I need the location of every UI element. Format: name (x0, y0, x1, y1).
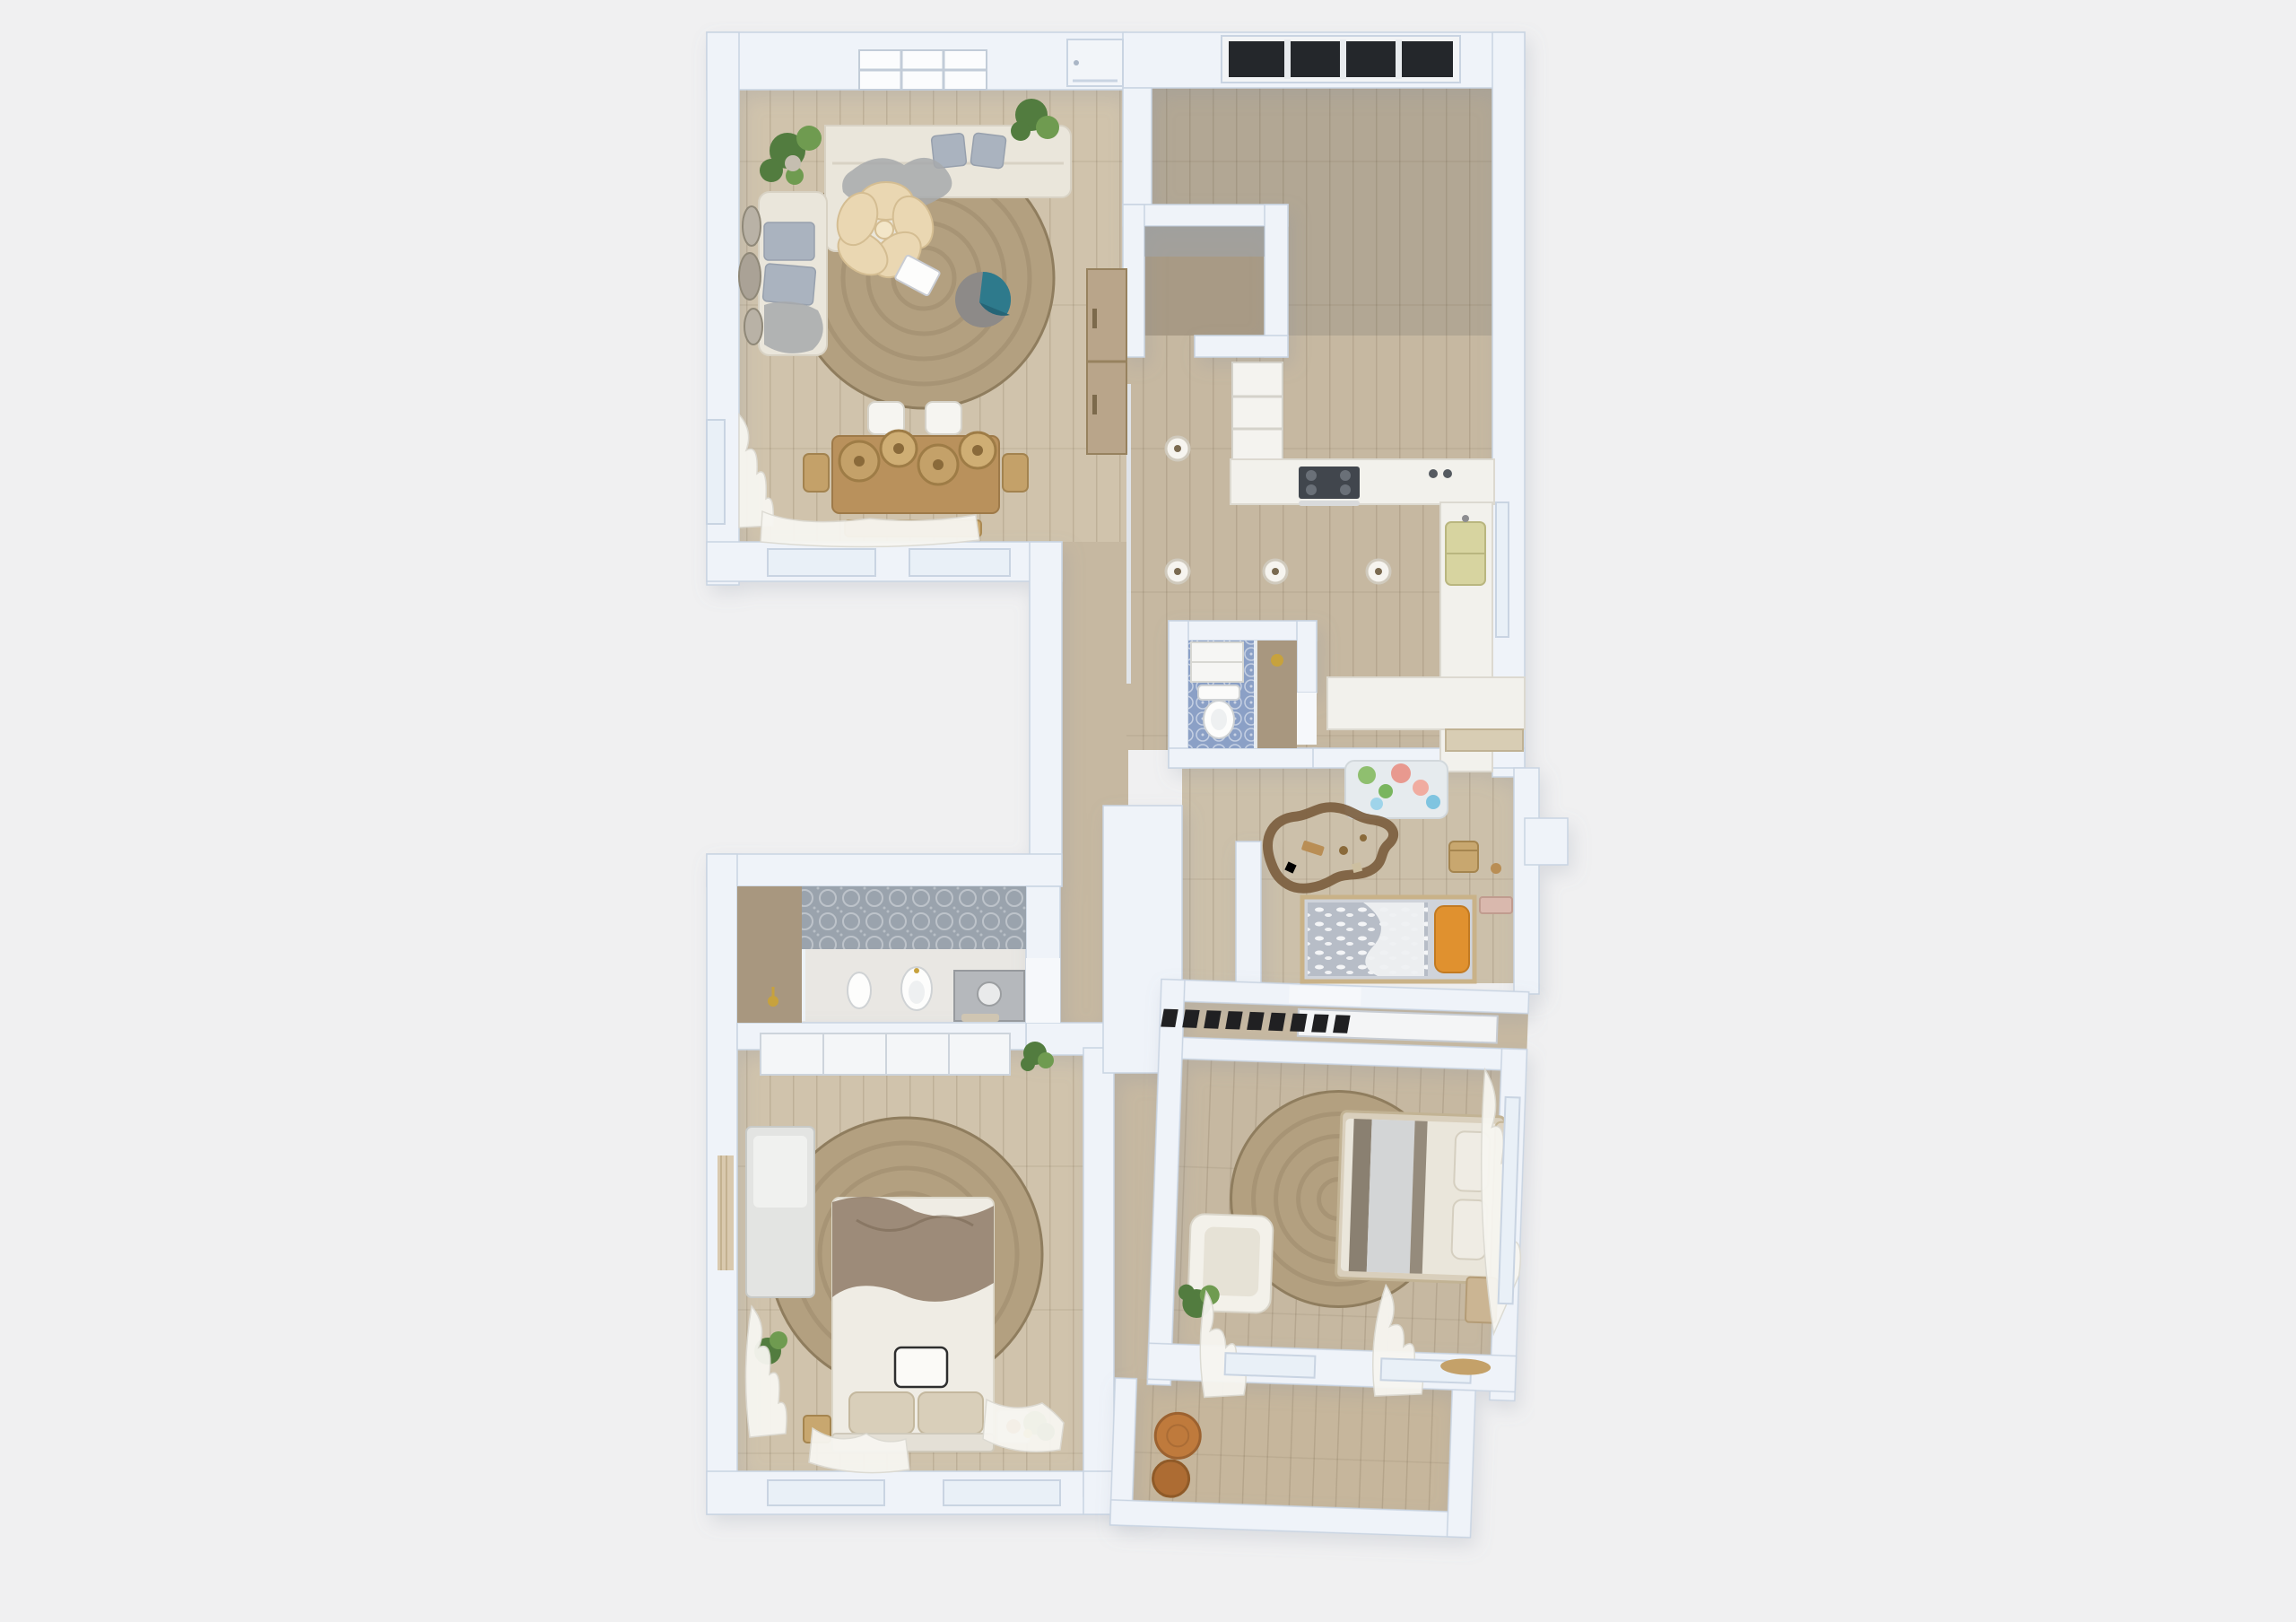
window-bedroom-left-2 (944, 1480, 1060, 1505)
white-cabinet (1232, 362, 1283, 459)
bed-runner-light (1367, 1120, 1415, 1274)
wc-door-threshold (1297, 693, 1317, 745)
wall-alcove-bottom (1195, 336, 1288, 357)
wall-wc-left (1169, 621, 1188, 768)
toy (1339, 846, 1348, 855)
wall-hallway-left (1030, 542, 1062, 886)
bed-pillow (918, 1392, 983, 1434)
kids-door-threshold (1289, 985, 1361, 1006)
faucet (1462, 515, 1469, 522)
skylight-window (1222, 36, 1460, 83)
toy-basket (1491, 863, 1501, 874)
wall-bedroom-left-right (1083, 1048, 1114, 1496)
peninsula-counter (1327, 677, 1525, 729)
dining-chair-white (926, 402, 961, 434)
bathroom-door-threshold (1026, 958, 1060, 1023)
wall-hall-separator (1123, 88, 1152, 205)
bedroom-right-block (1110, 978, 1530, 1539)
teal-pouf (955, 272, 1011, 327)
orange-pillow (1435, 906, 1469, 972)
wall-protrusion (1525, 818, 1568, 865)
floor-plan-screenshot (0, 0, 2296, 1622)
black-trim-cushion (895, 1347, 947, 1387)
hob-knob (1443, 469, 1452, 478)
wc-vanity (1191, 642, 1243, 682)
wall-wc-top (1169, 621, 1317, 641)
wall-kids-right (1514, 768, 1539, 994)
gold-shower-fixture (1271, 654, 1283, 667)
peninsula-base (1446, 729, 1523, 751)
window-bedroom-left-1 (768, 1480, 884, 1505)
door-handle (1074, 60, 1079, 65)
floor-plan-render (0, 0, 2296, 1622)
entrance-door (1067, 39, 1123, 86)
living-window (859, 50, 987, 90)
round-mat-small (1152, 1460, 1189, 1496)
wardrobe-handle (1092, 395, 1097, 414)
kitchen-sink (1446, 515, 1485, 585)
bidet (848, 972, 871, 1008)
wc (1188, 641, 1297, 748)
wall-alcove-right (1265, 205, 1288, 357)
oven-handle (1299, 501, 1360, 506)
toy (1360, 834, 1367, 842)
rattan-stool (1003, 454, 1028, 492)
wall-balcony-right (1447, 1390, 1475, 1538)
gold-flush-button (914, 968, 919, 973)
alcove-back-wall-shade (1144, 226, 1265, 257)
wall-alcove-top (1123, 205, 1288, 226)
floral-rug (1345, 761, 1448, 818)
toilet (901, 967, 932, 1010)
bed-pillow (849, 1392, 914, 1434)
round-sink (978, 982, 1001, 1006)
knit-cushion (762, 264, 815, 306)
window-kitchen-right (1496, 502, 1509, 637)
hob-knob (1429, 469, 1438, 478)
knit-cushion (970, 133, 1006, 169)
wall-bathroom-top (707, 854, 1062, 886)
kitchen-counter-top (1231, 459, 1494, 504)
macrame-hanging (717, 1155, 734, 1270)
rattan-stool (804, 454, 829, 492)
window-bench (746, 1127, 814, 1297)
gray-throw (764, 301, 823, 353)
wardrobe-handle (1092, 309, 1097, 328)
crib (1302, 897, 1474, 981)
kids-shelf (1480, 897, 1512, 913)
wall-kids-left (1236, 842, 1261, 992)
wall-wc-bottom (1169, 748, 1317, 768)
window-dining-bottom-2 (909, 549, 1010, 576)
double-bed (832, 1197, 994, 1452)
tile-pattern (802, 886, 1026, 949)
wall-wc-right (1297, 621, 1317, 693)
knit-cushion (764, 222, 814, 260)
window-bedroom-right-1 (1225, 1353, 1316, 1377)
wall-right-upper (1492, 32, 1525, 777)
round-mat-large (1154, 1413, 1201, 1460)
tall-wardrobe (1087, 269, 1126, 454)
built-in-wardrobe (761, 1033, 1010, 1075)
window-dining-left (707, 420, 725, 524)
marble-vanity (954, 971, 1024, 1022)
kids-chair (1449, 842, 1478, 872)
towel (961, 1014, 999, 1022)
window-dining-bottom-1 (768, 549, 875, 576)
